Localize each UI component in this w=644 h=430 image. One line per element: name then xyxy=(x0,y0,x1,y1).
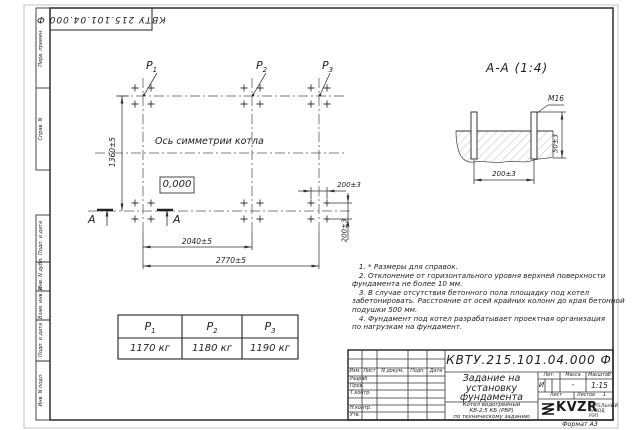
load-table-header-p2: P2 xyxy=(182,320,242,335)
tb-col-izm: Изм. xyxy=(348,369,362,375)
note-line: по нагрузкам на фундамент. xyxy=(352,323,614,332)
header-subscript: 2 xyxy=(213,327,217,335)
tb-lit-value: И xyxy=(538,381,545,389)
tb-sheets-value: 1 xyxy=(598,393,611,399)
margin-cell-perv-primen: Перв. примен. xyxy=(38,9,48,87)
elevation-mark: 0,000 xyxy=(160,179,194,190)
header-subscript: 3 xyxy=(271,327,275,335)
load-symbol: P xyxy=(256,59,263,72)
thread-label-m16: М16 xyxy=(548,94,564,103)
tb-row-tkontr: Т.контр. xyxy=(350,391,371,397)
tb-scale-value: 1:15 xyxy=(586,381,613,390)
dim-2040: 2040±5 xyxy=(175,237,219,246)
margin-cell-podp-data-1: Подп. и дата xyxy=(38,215,48,261)
section-title: А-А (1:4) xyxy=(486,61,548,75)
margin-cell-podp-data-2: Подп. и дата xyxy=(38,320,48,360)
section-letter-right: А xyxy=(173,213,181,226)
margin-cell-sprav-n: Справ. N xyxy=(38,89,48,169)
doc-number: КВТУ.215.101.04.000 Ф xyxy=(445,353,613,367)
section-letter-left: А xyxy=(88,213,96,226)
margin-cell-vzam-inv: Взам. инв. N xyxy=(38,291,48,319)
tb-sheets-label: Листов xyxy=(574,393,598,399)
load-symbol: P xyxy=(146,59,153,72)
dim-1360: 1360±5 xyxy=(108,129,118,175)
tb-sheet-label: Лист xyxy=(538,393,574,399)
company-line: ЗАВОД РЭП xyxy=(589,409,615,419)
load-table-header-p1: P1 xyxy=(118,320,182,335)
product-line: по техническому заданию xyxy=(445,415,538,421)
dim-200-horizontal: 200±3 xyxy=(333,181,365,189)
load-label-p2: P2 xyxy=(256,59,267,74)
dim-2770: 2770±5 xyxy=(209,256,253,265)
format-label: Формат А3 xyxy=(553,421,607,428)
load-symbol: P xyxy=(322,59,329,72)
tb-mass-header: Масса xyxy=(560,373,586,379)
tb-col-podp: Подп. xyxy=(408,369,427,375)
anchor-bolt xyxy=(531,112,537,159)
company-name: КОТЕЛЬНЫЙ ЗАВОД РЭП xyxy=(589,404,615,419)
tb-scale-header: Масштаб xyxy=(586,373,613,379)
load-subscript: 3 xyxy=(329,66,333,74)
load-table-header-p3: P3 xyxy=(242,320,298,335)
tb-col-data: Дата xyxy=(427,369,445,375)
load-value-p1: 1170 кг xyxy=(118,343,182,354)
anchor-bolt-marks xyxy=(132,85,331,223)
dim-50-section: 50±3 xyxy=(552,126,561,162)
drawing-sheet: КВТУ 215.101.04.000 Ф Перв. примен. Спра… xyxy=(0,0,644,430)
tb-row-razrab: Разраб. xyxy=(350,377,369,383)
notes-block: 1. * Размеры для справок. 2. Отклонение … xyxy=(352,263,614,332)
tb-col-list: Лист xyxy=(362,369,377,375)
tb-row-utv: Утв. xyxy=(350,413,360,419)
tb-col-ndokum: N докум. xyxy=(377,369,408,375)
doc-title: Задание на установку фундамента xyxy=(445,374,538,403)
tb-row-prov: Пров. xyxy=(350,384,364,390)
symmetry-axis-label: Ось симметрии котла xyxy=(155,136,264,147)
load-subscript: 2 xyxy=(263,66,267,74)
load-value-p3: 1190 кг xyxy=(242,343,298,354)
dim-200-vertical: 200±3 xyxy=(341,212,350,250)
product-name: Котел водогрейный КВ-2,5 КБ (РВР) по тех… xyxy=(445,403,538,420)
dim-200-section: 200±3 xyxy=(486,170,522,178)
tb-row-nkontr: Н.контр. xyxy=(350,406,371,412)
top-left-stamp: КВТУ 215.101.04.000 Ф xyxy=(50,8,152,30)
tb-lit-header: Лит. xyxy=(538,373,560,379)
load-label-p3: P3 xyxy=(322,59,333,74)
header-subscript: 1 xyxy=(151,327,155,335)
load-subscript: 1 xyxy=(153,66,157,74)
section-view-arrows xyxy=(107,216,167,226)
load-value-p2: 1180 кг xyxy=(182,343,242,354)
load-label-p1: P1 xyxy=(146,59,157,74)
stamp-code: КВТУ 215.101.04.000 Ф xyxy=(36,14,166,24)
plan-axes xyxy=(88,78,352,232)
tb-mass-value: - xyxy=(560,381,586,389)
kvzr-logo-icon xyxy=(542,404,554,414)
anchor-bolt xyxy=(471,112,477,159)
margin-cell-inv-podl: Инв. N подл. xyxy=(38,362,48,418)
